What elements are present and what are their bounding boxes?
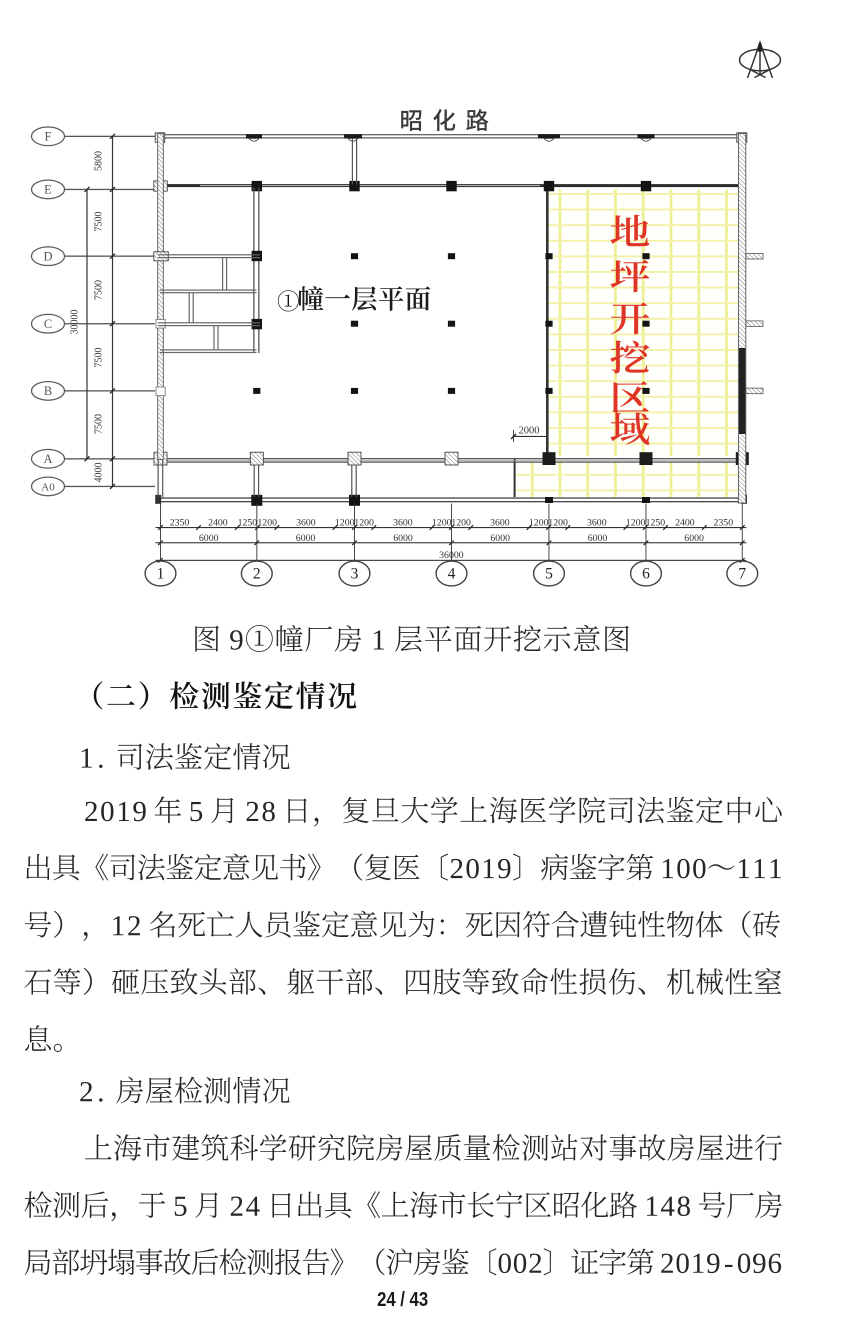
svg-text:3: 3 (351, 566, 359, 583)
svg-text:6000: 6000 (393, 533, 413, 544)
svg-text:3600: 3600 (587, 518, 607, 529)
svg-text:2400: 2400 (675, 518, 695, 529)
svg-text:5: 5 (545, 566, 553, 583)
svg-text:6000: 6000 (588, 533, 608, 544)
svg-text:5800: 5800 (94, 151, 105, 171)
svg-text:1200: 1200 (626, 518, 646, 529)
svg-text:2400: 2400 (208, 518, 228, 529)
svg-text:1200: 1200 (257, 518, 277, 529)
svg-text:3600: 3600 (296, 518, 316, 529)
svg-text:1250: 1250 (238, 518, 258, 529)
svg-text:1200: 1200 (432, 518, 452, 529)
svg-text:A: A (43, 452, 52, 466)
svg-text:D: D (43, 249, 52, 263)
svg-text:1200: 1200 (451, 518, 471, 529)
svg-text:2350: 2350 (170, 518, 190, 529)
svg-text:6000: 6000 (199, 533, 219, 544)
svg-text:1200: 1200 (548, 518, 568, 529)
svg-text:1: 1 (157, 566, 165, 583)
svg-text:6: 6 (642, 566, 650, 583)
svg-text:B: B (44, 384, 52, 398)
svg-text:7500: 7500 (94, 348, 105, 368)
svg-text:4: 4 (448, 566, 456, 583)
svg-text:2350: 2350 (714, 518, 734, 529)
svg-text:24 / 43: 24 / 43 (377, 1289, 428, 1311)
svg-text:6000: 6000 (296, 533, 316, 544)
svg-text:7: 7 (738, 566, 746, 583)
svg-text:6000: 6000 (490, 533, 510, 544)
svg-text:7500: 7500 (94, 212, 105, 232)
svg-text:C: C (44, 317, 52, 331)
svg-text:A0: A0 (41, 481, 55, 493)
svg-text:7500: 7500 (94, 414, 105, 434)
svg-text:30000: 30000 (70, 310, 81, 335)
svg-text:E: E (44, 183, 52, 197)
svg-text:1200: 1200 (335, 518, 355, 529)
svg-text:1250: 1250 (646, 518, 666, 529)
svg-text:2: 2 (253, 566, 261, 583)
svg-text:F: F (45, 130, 52, 144)
svg-text:1200: 1200 (529, 518, 549, 529)
svg-text:4000: 4000 (94, 463, 105, 483)
svg-text:7500: 7500 (94, 280, 105, 300)
svg-text:2000: 2000 (519, 426, 540, 437)
svg-text:3600: 3600 (490, 518, 510, 529)
svg-text:1200: 1200 (354, 518, 374, 529)
svg-text:3600: 3600 (393, 518, 413, 529)
svg-text:6000: 6000 (684, 533, 704, 544)
